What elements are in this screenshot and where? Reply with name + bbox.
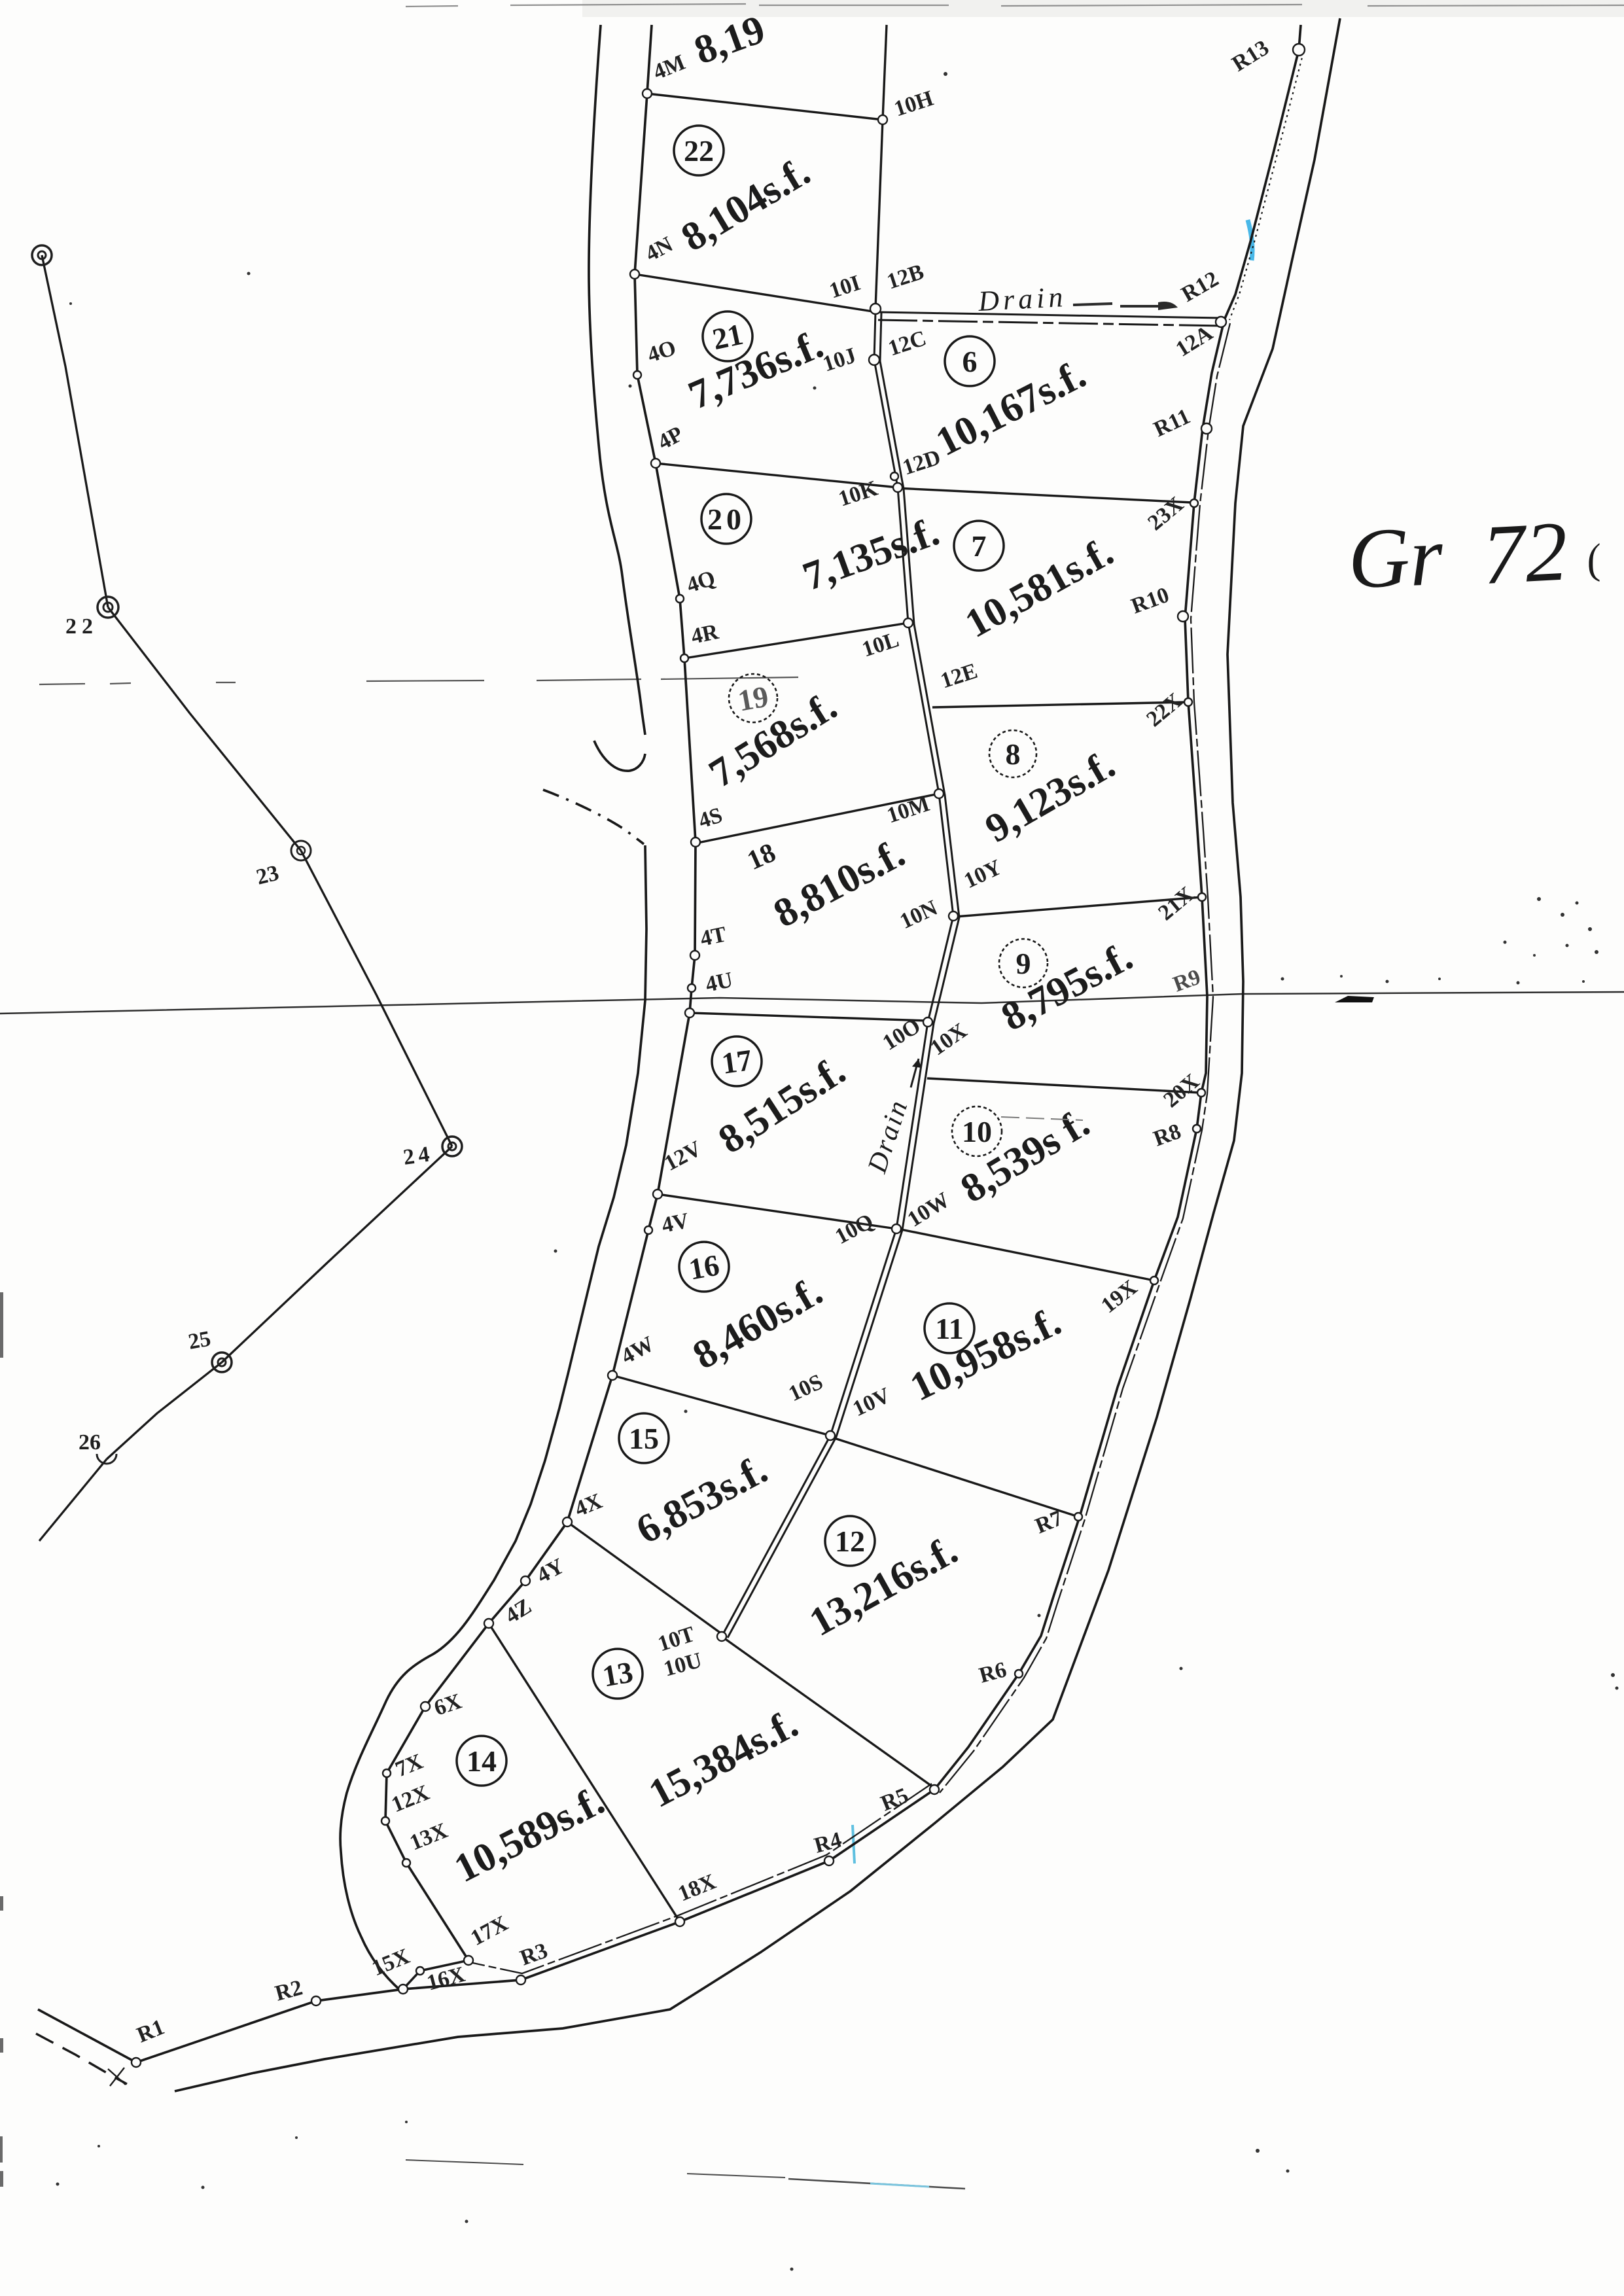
svg-text:25: 25 [186, 1327, 213, 1354]
svg-text:17: 17 [720, 1043, 754, 1080]
svg-text:13: 13 [600, 1655, 635, 1693]
svg-text:24: 24 [402, 1142, 435, 1170]
svg-text:15: 15 [629, 1422, 659, 1455]
svg-text:19: 19 [735, 679, 771, 717]
svg-text:14: 14 [467, 1744, 497, 1778]
svg-text:11: 11 [935, 1312, 963, 1345]
svg-text:9: 9 [1016, 947, 1031, 980]
svg-text:8: 8 [1006, 737, 1021, 771]
svg-text:6: 6 [962, 345, 978, 378]
svg-text:22: 22 [65, 614, 98, 639]
svg-text:Drain: Drain [977, 281, 1068, 317]
svg-text:26: 26 [79, 1430, 101, 1455]
svg-text:10: 10 [962, 1115, 992, 1148]
svg-text:72: 72 [1480, 504, 1570, 603]
svg-text:20: 20 [707, 503, 745, 536]
svg-text:Gr: Gr [1347, 509, 1445, 607]
svg-text:22: 22 [684, 134, 714, 168]
svg-text:12: 12 [835, 1525, 865, 1558]
svg-text:7: 7 [972, 529, 987, 563]
svg-text:16: 16 [686, 1248, 722, 1286]
